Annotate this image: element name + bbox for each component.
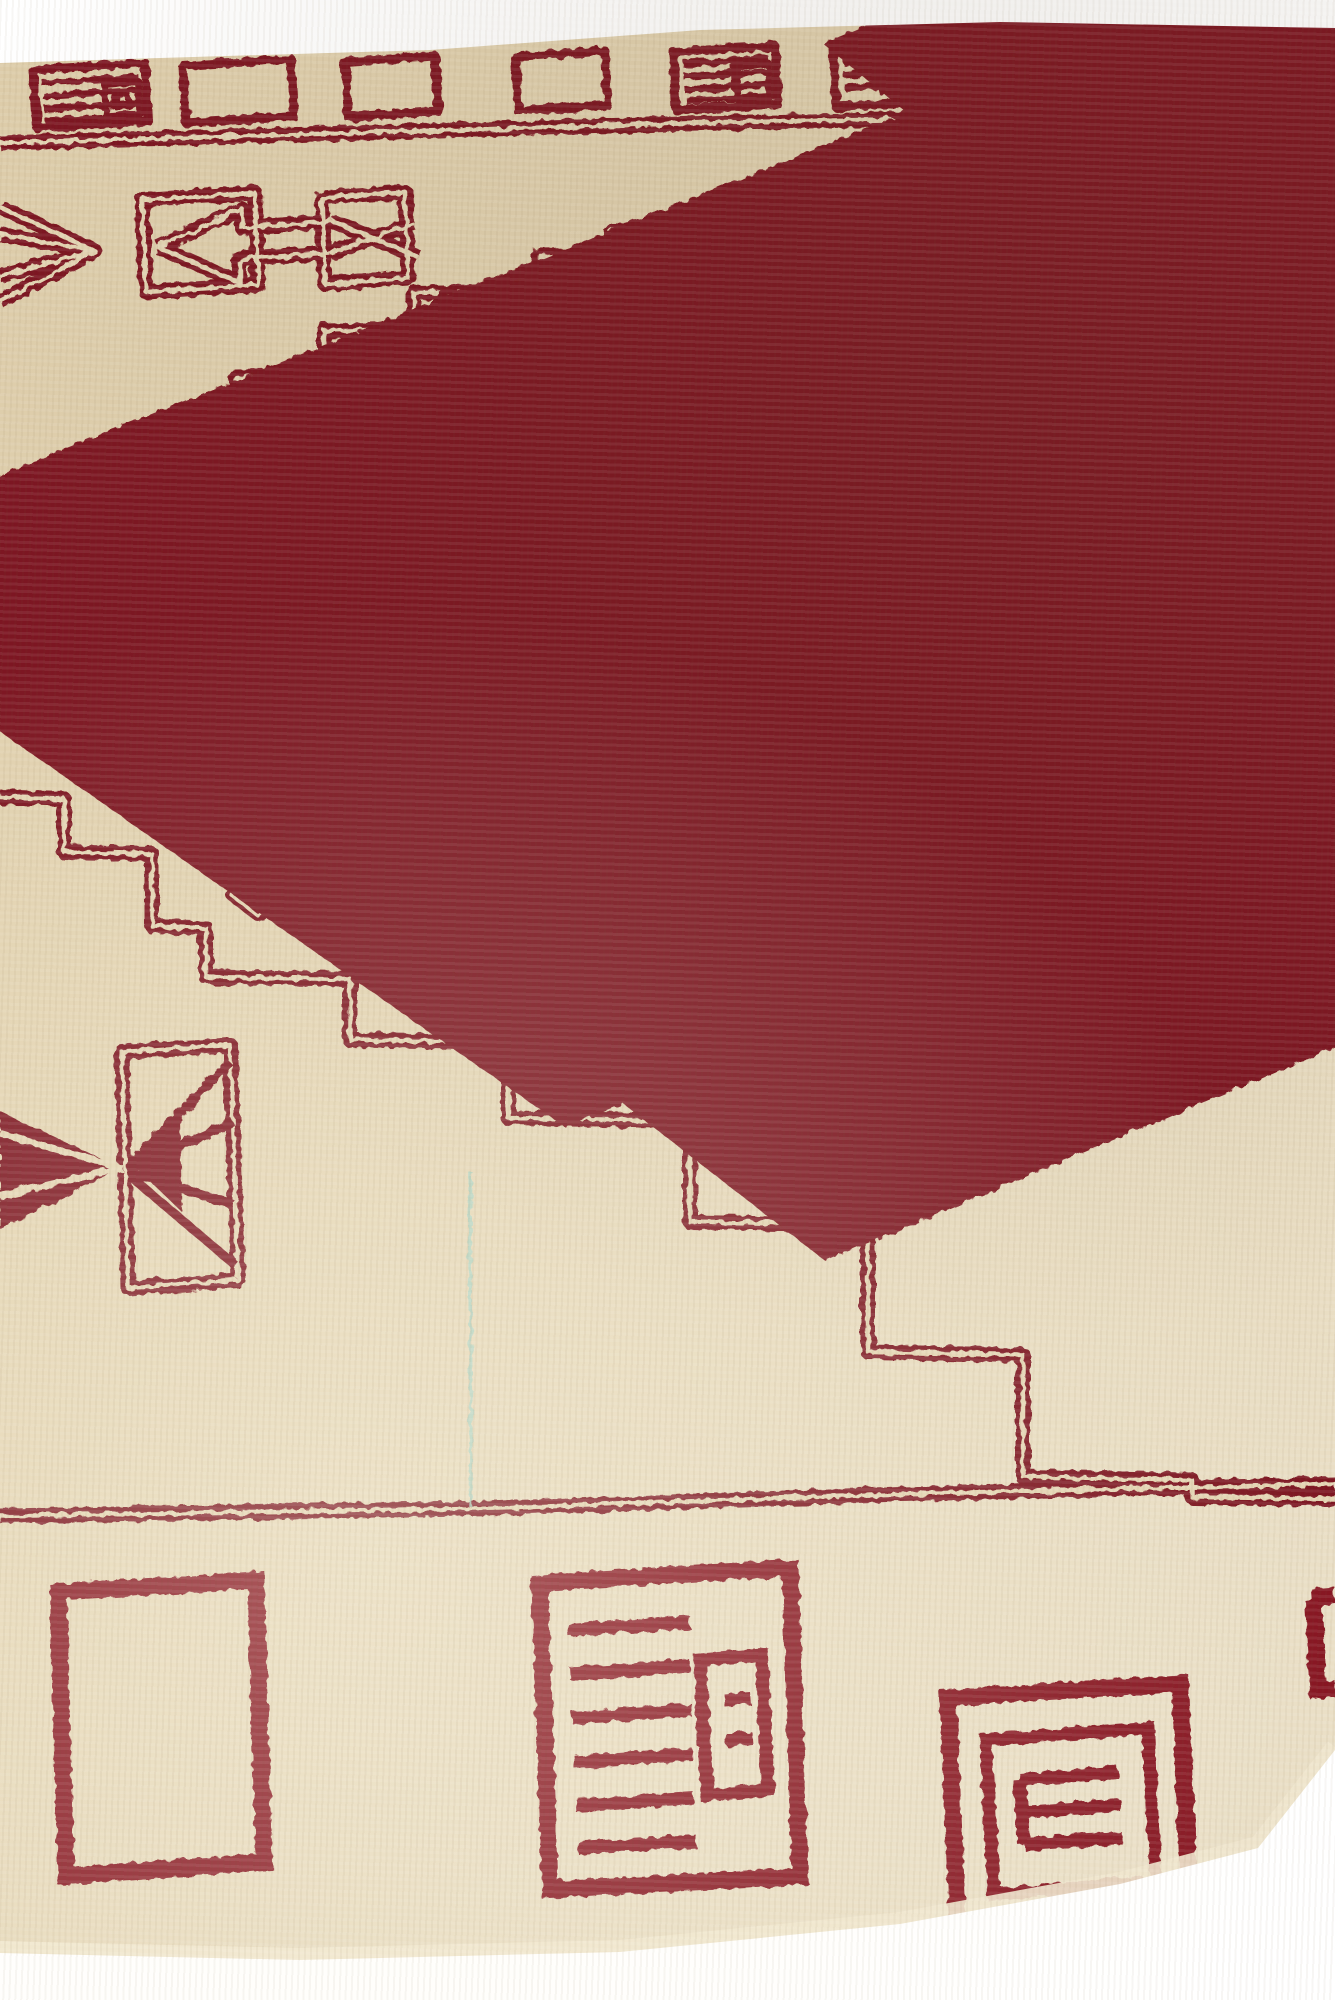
grid-diamond-top-row xyxy=(1067,34,1177,92)
rug-photo-canvas xyxy=(0,0,1335,2000)
grid-diamond-bottom xyxy=(843,671,1167,839)
teal-weft-line xyxy=(470,1172,471,1506)
rug-photo xyxy=(0,0,1335,2000)
